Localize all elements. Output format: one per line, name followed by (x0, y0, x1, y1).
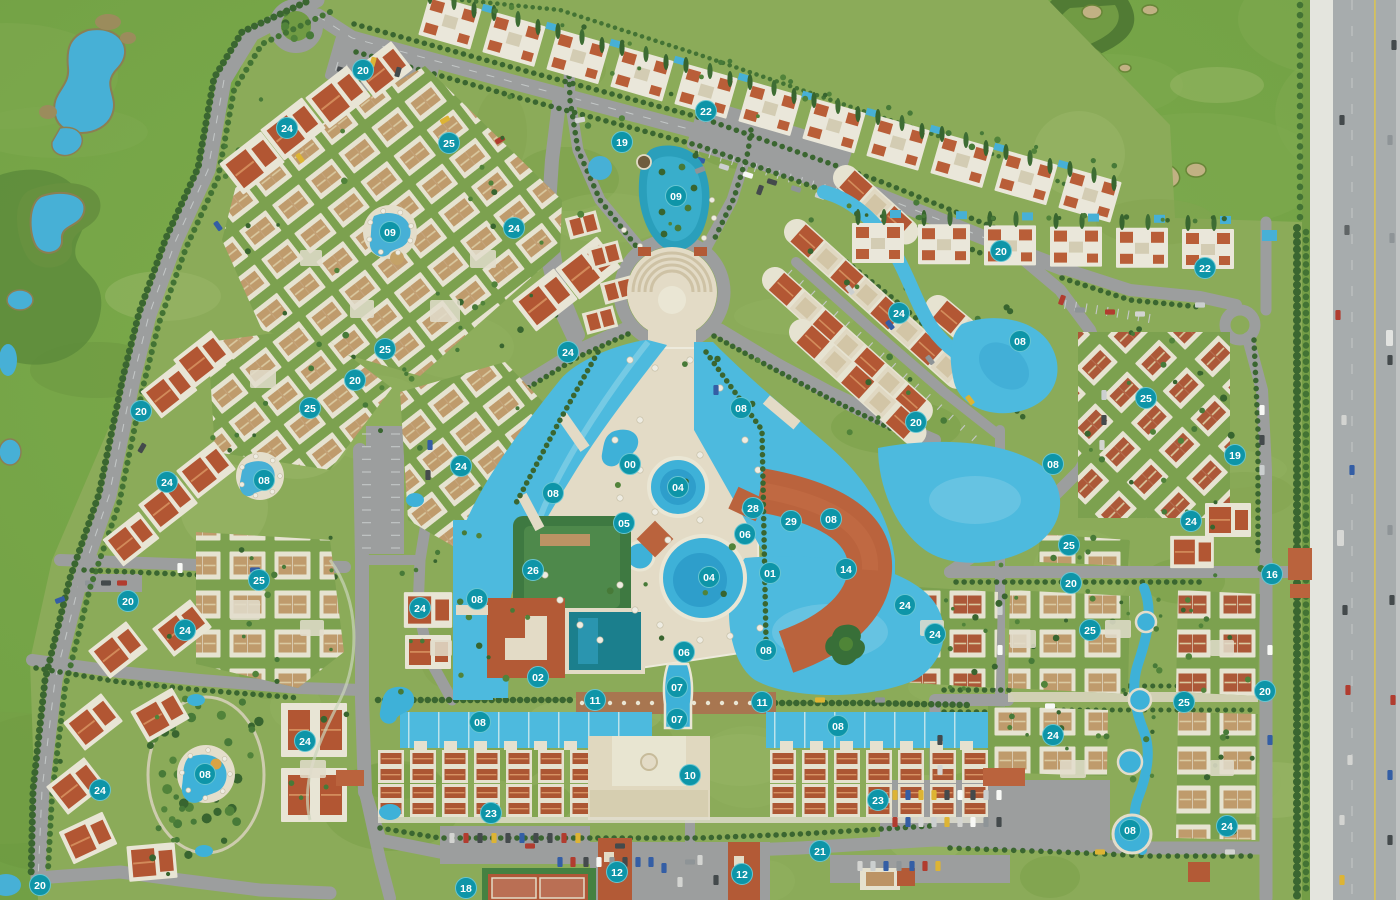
svg-text:22: 22 (700, 106, 712, 118)
svg-text:11: 11 (589, 695, 600, 707)
svg-text:20: 20 (357, 65, 369, 77)
svg-text:24: 24 (899, 600, 911, 612)
svg-text:29: 29 (785, 516, 797, 528)
svg-text:24: 24 (94, 785, 106, 797)
svg-text:24: 24 (455, 461, 467, 473)
svg-text:06: 06 (678, 647, 690, 659)
svg-text:00: 00 (624, 459, 636, 471)
svg-text:11: 11 (756, 697, 767, 709)
svg-text:10: 10 (684, 770, 696, 782)
svg-text:24: 24 (299, 736, 311, 748)
svg-text:08: 08 (474, 717, 486, 729)
svg-text:08: 08 (832, 721, 844, 733)
svg-text:24: 24 (929, 629, 941, 641)
svg-text:19: 19 (1229, 450, 1241, 462)
svg-text:18: 18 (460, 883, 472, 895)
svg-text:20: 20 (1065, 578, 1077, 590)
svg-text:20: 20 (135, 406, 147, 418)
svg-text:01: 01 (764, 568, 776, 580)
svg-text:24: 24 (1221, 821, 1233, 833)
svg-text:16: 16 (1266, 569, 1278, 581)
svg-text:08: 08 (1014, 336, 1026, 348)
svg-text:09: 09 (670, 191, 682, 203)
svg-text:02: 02 (532, 672, 544, 684)
svg-text:19: 19 (616, 137, 628, 149)
svg-text:12: 12 (736, 869, 748, 881)
svg-text:24: 24 (1185, 516, 1197, 528)
svg-text:25: 25 (1178, 697, 1190, 709)
svg-text:25: 25 (1140, 393, 1152, 405)
svg-text:05: 05 (618, 518, 630, 530)
svg-text:24: 24 (893, 308, 905, 320)
svg-text:06: 06 (739, 529, 751, 541)
svg-text:08: 08 (1047, 459, 1059, 471)
svg-text:22: 22 (1199, 263, 1211, 275)
svg-text:08: 08 (199, 769, 211, 781)
svg-text:04: 04 (703, 572, 715, 584)
svg-text:07: 07 (671, 714, 683, 726)
svg-text:23: 23 (872, 795, 884, 807)
svg-text:21: 21 (814, 846, 826, 858)
svg-text:24: 24 (179, 625, 191, 637)
svg-text:04: 04 (672, 482, 684, 494)
svg-text:25: 25 (1084, 625, 1096, 637)
svg-text:08: 08 (1124, 825, 1136, 837)
svg-text:25: 25 (304, 403, 316, 415)
svg-text:25: 25 (443, 138, 455, 150)
svg-text:14: 14 (840, 564, 852, 576)
svg-text:20: 20 (349, 375, 361, 387)
svg-text:08: 08 (760, 645, 772, 657)
svg-text:24: 24 (161, 477, 173, 489)
svg-text:24: 24 (414, 603, 426, 615)
svg-text:24: 24 (562, 347, 574, 359)
svg-text:25: 25 (253, 575, 265, 587)
svg-text:28: 28 (747, 503, 759, 515)
svg-text:09: 09 (384, 227, 396, 239)
svg-text:20: 20 (34, 880, 46, 892)
svg-text:08: 08 (825, 514, 837, 526)
svg-text:20: 20 (910, 417, 922, 429)
svg-text:26: 26 (527, 565, 539, 577)
svg-text:08: 08 (471, 594, 483, 606)
svg-text:08: 08 (547, 488, 559, 500)
svg-text:24: 24 (1047, 730, 1059, 742)
svg-text:25: 25 (379, 344, 391, 356)
svg-text:25: 25 (1063, 540, 1075, 552)
svg-text:08: 08 (258, 475, 270, 487)
svg-text:08: 08 (735, 403, 747, 415)
svg-text:24: 24 (281, 123, 293, 135)
svg-text:20: 20 (1259, 686, 1271, 698)
svg-text:23: 23 (485, 808, 497, 820)
svg-text:07: 07 (671, 682, 683, 694)
svg-text:24: 24 (508, 223, 520, 235)
svg-text:20: 20 (122, 596, 134, 608)
svg-text:20: 20 (995, 246, 1007, 258)
svg-text:12: 12 (611, 867, 623, 879)
